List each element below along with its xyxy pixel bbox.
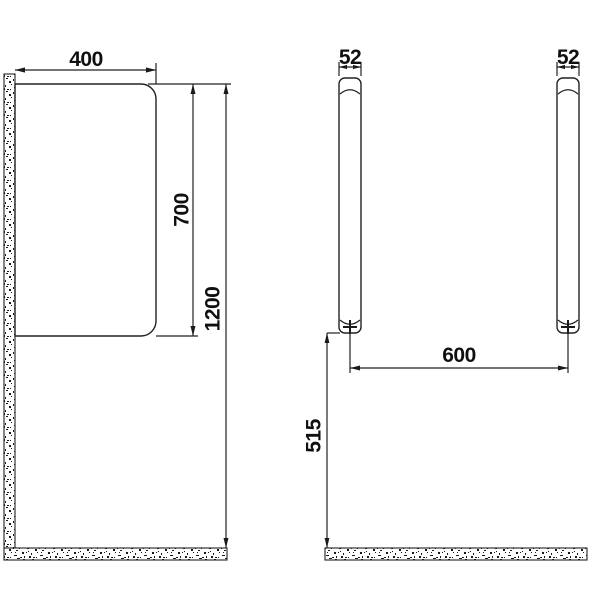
dimension-52-right: 52	[557, 46, 579, 76]
dimension-1200: 1200	[201, 84, 228, 548]
dimension-515: 515	[302, 333, 340, 548]
technical-drawing-page: 400 700 1200 52	[0, 0, 600, 600]
mirror-side-profile-left	[339, 78, 361, 333]
dimension-52-right-label: 52	[557, 46, 579, 69]
dimension-700-label: 700	[170, 193, 193, 227]
mirror-panel-front-view	[15, 84, 156, 336]
dimension-400-label: 400	[69, 48, 103, 71]
dimension-600: 600	[350, 331, 568, 373]
dimension-drawing: 400 700 1200 52	[0, 0, 600, 600]
dimension-400: 400	[15, 48, 156, 84]
dimension-52-left-label: 52	[339, 46, 361, 69]
dimension-600-label: 600	[442, 344, 476, 367]
mirror-side-profile-right	[557, 78, 579, 333]
dimension-1200-label: 1200	[201, 287, 224, 332]
dimension-52-left: 52	[339, 46, 361, 76]
dimension-700: 700	[170, 84, 195, 336]
wall-section-hatch	[4, 74, 15, 548]
dimension-515-label: 515	[302, 418, 325, 452]
floor-section-left	[4, 548, 227, 560]
floor-section-right	[325, 548, 587, 560]
